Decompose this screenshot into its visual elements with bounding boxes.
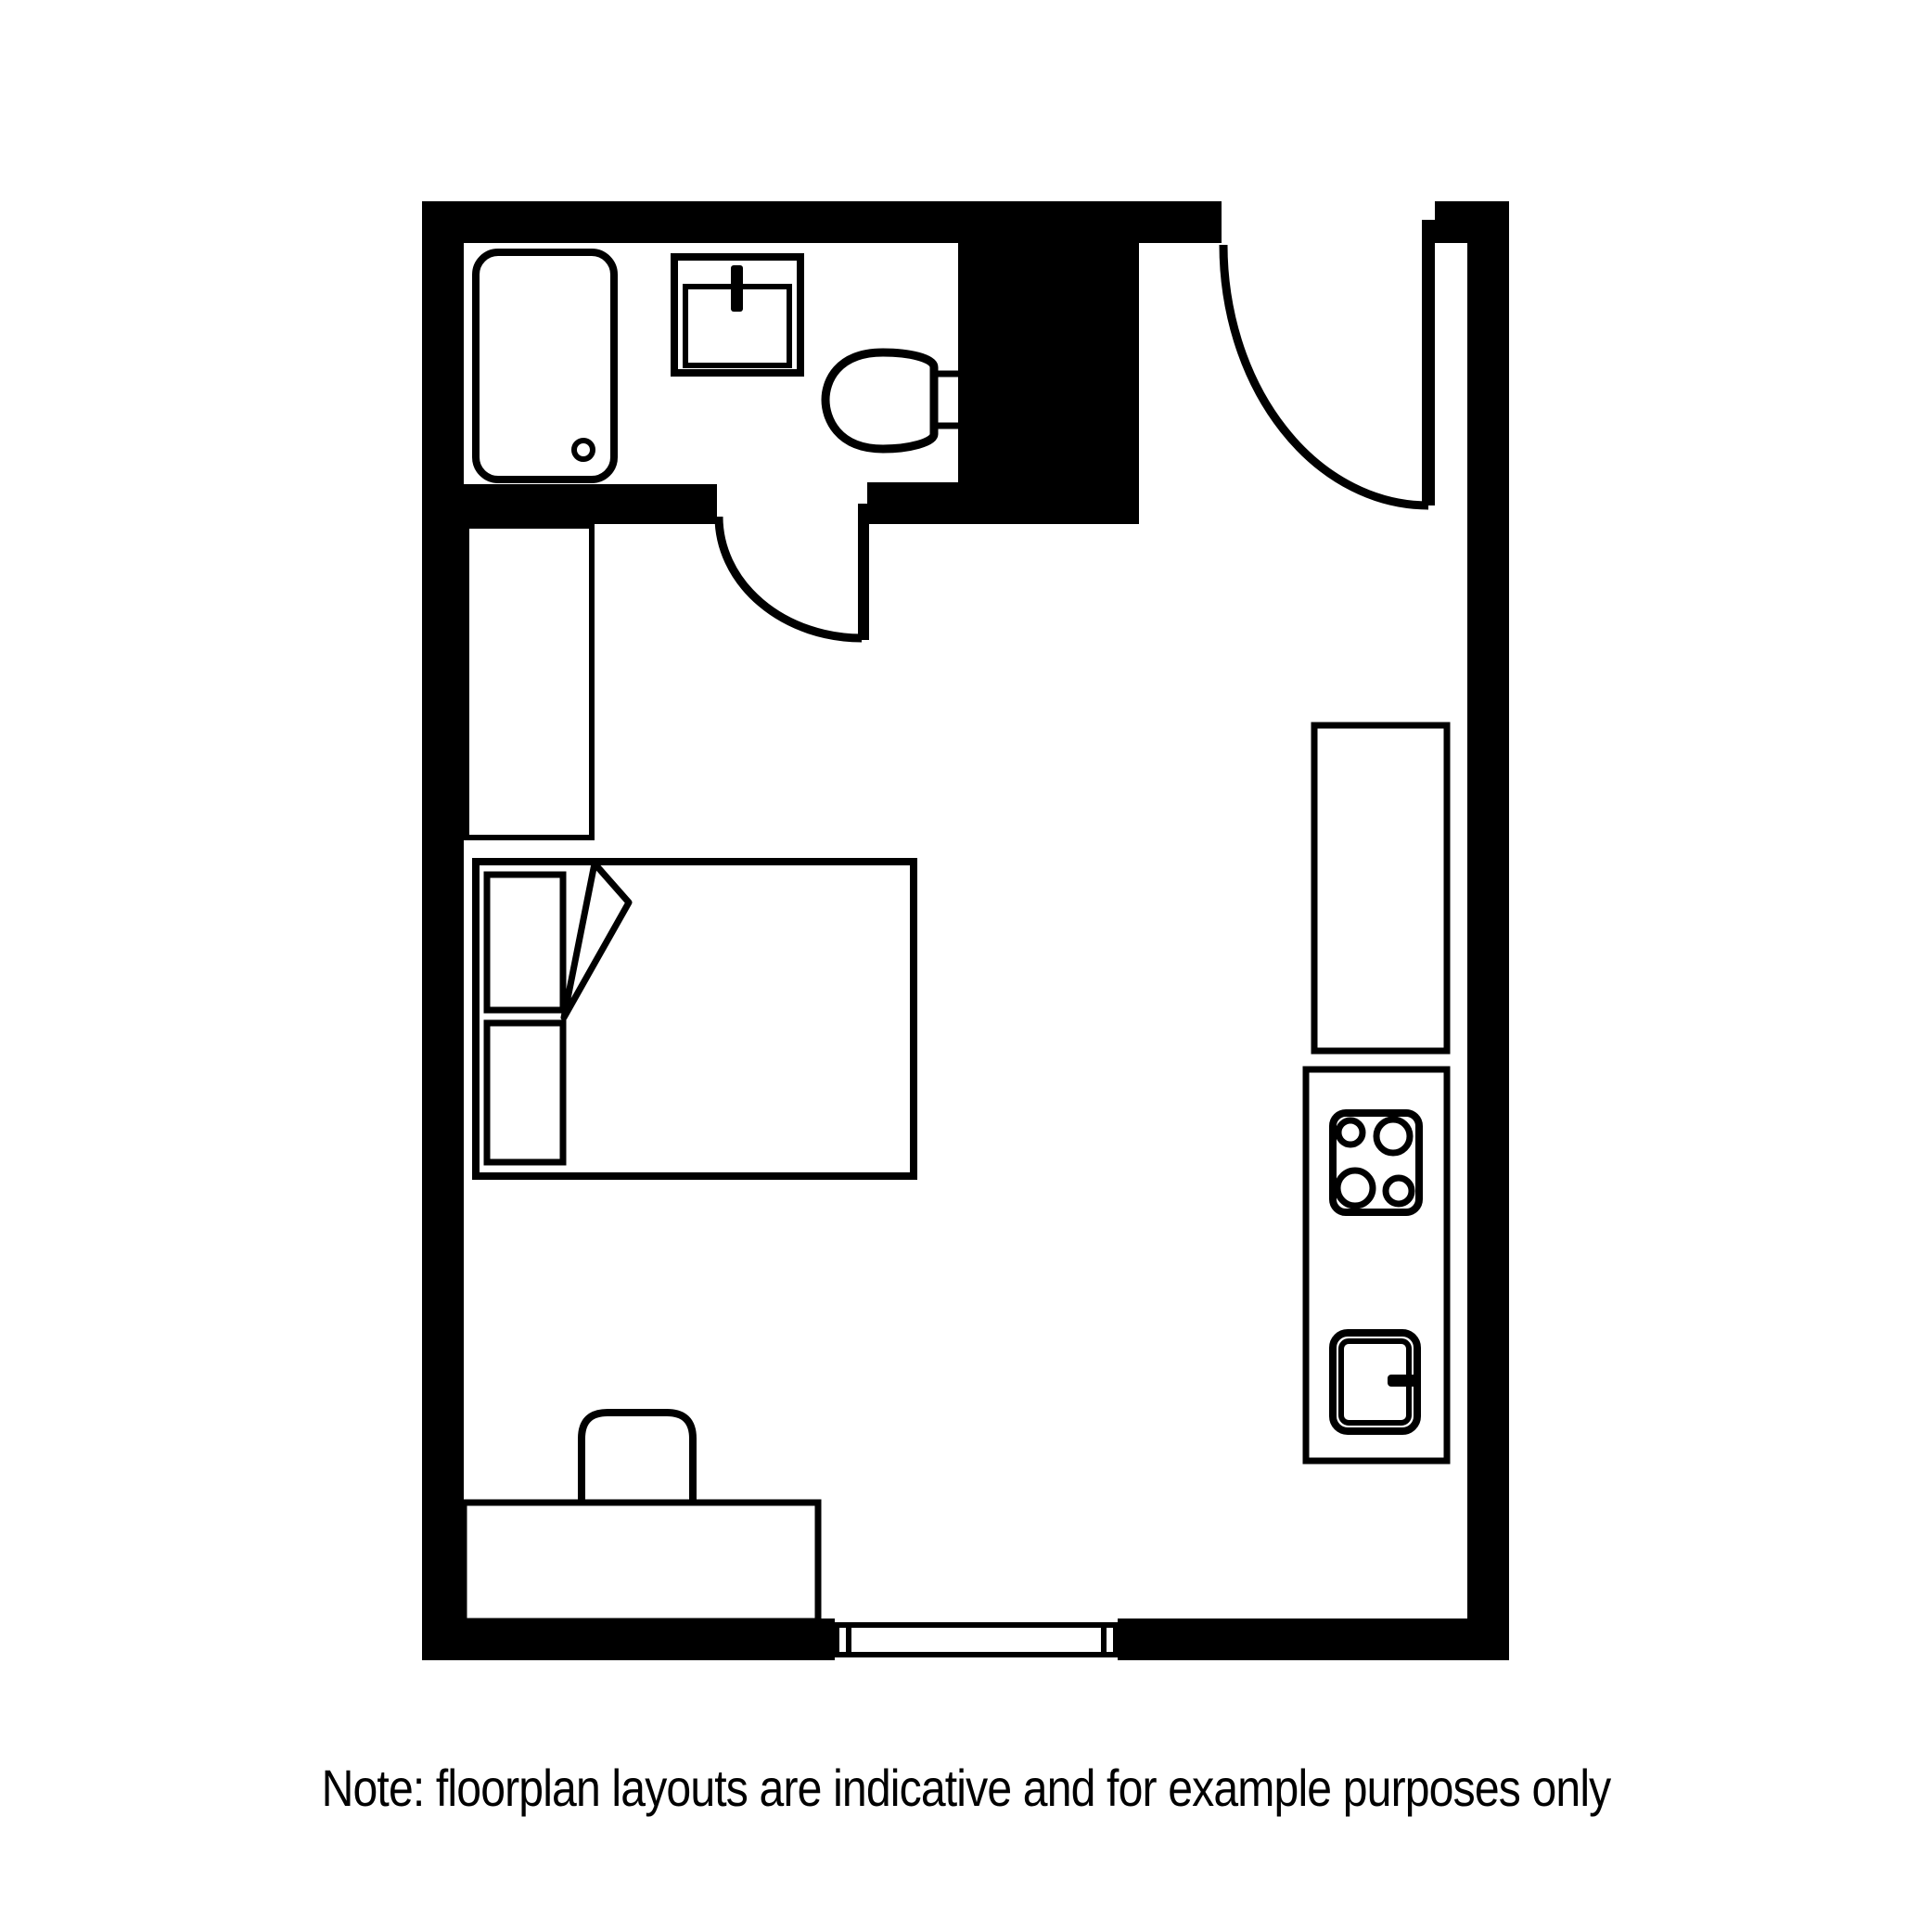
bathroom-tap-icon xyxy=(731,265,743,312)
service-shaft xyxy=(958,201,1139,524)
pillow-bottom xyxy=(487,1023,563,1162)
chair xyxy=(582,1413,693,1504)
wall-bottom-right xyxy=(1118,1619,1509,1660)
wall-top-right-stub xyxy=(1435,201,1509,243)
floorplan xyxy=(0,0,1932,1932)
wall-bottom-left xyxy=(422,1619,835,1660)
entry-door-leaf xyxy=(1422,220,1435,505)
kitchen xyxy=(1306,725,1447,1461)
burner-bottom-left xyxy=(1337,1171,1373,1206)
pillow-top xyxy=(487,875,563,1010)
living-area xyxy=(464,526,914,1621)
note-text: Note: floorplan layouts are indicative a… xyxy=(135,1759,1797,1818)
window-frame xyxy=(837,1625,1116,1655)
burner-top-left xyxy=(1338,1120,1363,1145)
burner-top-right xyxy=(1376,1120,1410,1153)
entry-door-swing xyxy=(1223,245,1428,505)
bathroom-door-leaf xyxy=(858,504,869,640)
toilet xyxy=(825,352,934,449)
desk xyxy=(464,1503,818,1621)
kitchen-tap-icon xyxy=(1388,1375,1421,1387)
window xyxy=(837,1625,1116,1655)
burner-bottom-right xyxy=(1386,1178,1412,1204)
bathroom-door-swing xyxy=(719,517,862,638)
wall-bathroom-south-stub xyxy=(867,482,958,524)
bathtub-drain xyxy=(574,441,593,459)
wall-right xyxy=(1467,243,1509,1660)
bathroom xyxy=(476,252,958,480)
wall-left xyxy=(422,201,464,1660)
kitchen-counter xyxy=(1314,725,1447,1051)
wardrobe xyxy=(467,526,592,838)
wall-bathroom-south xyxy=(464,484,717,524)
